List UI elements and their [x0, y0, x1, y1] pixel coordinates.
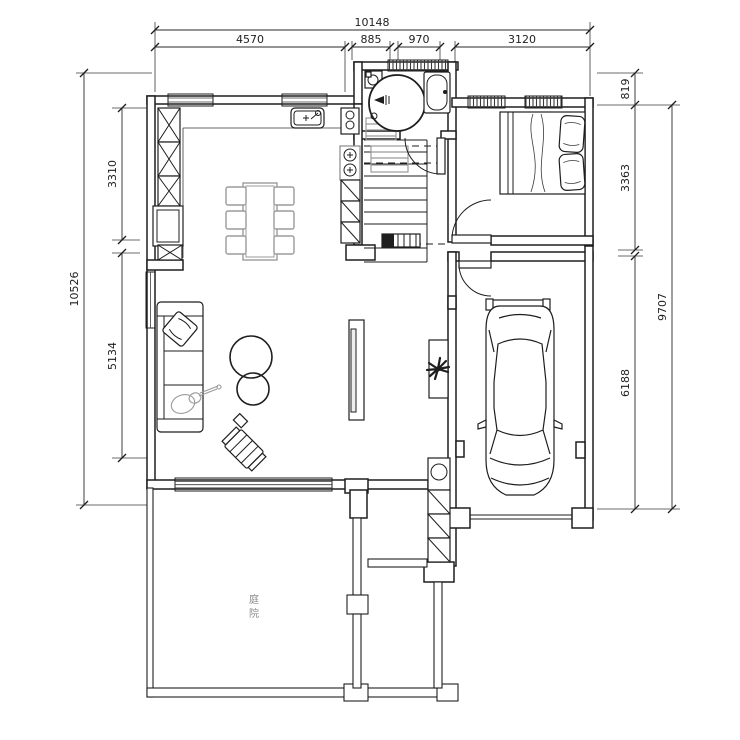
dining-chair	[226, 236, 246, 254]
fence-middle-lower	[353, 614, 361, 688]
wall-garage-top	[491, 252, 593, 261]
tv-stand	[349, 320, 364, 420]
tv	[351, 329, 356, 412]
dim-top-seg-4: 3120	[508, 33, 536, 46]
garage	[478, 299, 562, 495]
dining-chair	[274, 236, 294, 254]
sofa	[157, 302, 221, 432]
stair-treads	[364, 140, 427, 248]
wall-garage-left-pier	[456, 441, 464, 457]
dim-right-seg-3: 6188	[619, 369, 632, 397]
dim-top-seg-3: 970	[409, 33, 430, 46]
dim-right-seg-2: 3363	[619, 164, 632, 192]
dim-top-seg-1: 4570	[236, 33, 264, 46]
floor-plan-canvas: 10148 4570 885 970 3120 10526 3310	[0, 0, 740, 740]
wall-kitchen-top	[147, 96, 360, 104]
kitchen-sink	[291, 108, 324, 128]
wall-bedroom-right	[585, 98, 593, 246]
fence-middle-upper	[353, 518, 361, 595]
car-mirror	[478, 420, 486, 429]
wall-left-exterior	[147, 96, 155, 488]
window-bedroom-2	[525, 96, 562, 108]
wall-garage-right-pier	[576, 442, 585, 458]
pier-garage-door-left	[448, 508, 470, 528]
dim-left-seg-1: 3310	[106, 160, 119, 188]
dining-set	[226, 183, 294, 260]
stove	[340, 146, 360, 180]
dim-right-seg-1: 819	[619, 79, 632, 100]
pillow	[559, 115, 585, 153]
coffee-table-large	[230, 336, 272, 378]
fence-bottom	[147, 688, 455, 697]
dim-left-total: 10526	[68, 272, 81, 307]
bedroom	[500, 112, 585, 194]
living-room	[157, 302, 449, 472]
dining-chair	[274, 211, 294, 229]
car-mirror	[554, 420, 562, 429]
courtyard-label: 庭 院	[249, 593, 259, 620]
kitchen-cabinets-right	[341, 180, 360, 243]
window-bedroom-1	[468, 96, 505, 108]
fence-mudroom	[434, 582, 442, 688]
wall-bedroom-bottom	[491, 236, 593, 245]
dim-left-seg-2: 5134	[106, 342, 119, 370]
kitchen-cabinets-left	[153, 108, 183, 260]
wall-kitchen-living-stub	[147, 260, 183, 270]
dim-right-total: 9707	[656, 293, 669, 321]
stair-mat	[382, 234, 420, 247]
kitchen-prep-sink	[341, 108, 359, 134]
courtyard-label-char-1: 庭	[249, 593, 259, 606]
garage-entry-door	[459, 261, 491, 296]
car	[478, 299, 562, 495]
lounge-chair	[216, 414, 275, 473]
left-dimension-chain: 10526 3310 5134	[68, 69, 152, 509]
round-tub	[369, 75, 425, 131]
window-bathroom-top	[388, 60, 448, 71]
dining-chair	[274, 187, 294, 205]
dining-chair	[226, 187, 246, 205]
mudroom-cabinets	[428, 458, 450, 562]
fence-connector	[368, 559, 427, 567]
bathroom	[365, 71, 450, 131]
wall-stair-cap	[346, 245, 375, 260]
fence-pier-middle	[347, 595, 368, 614]
wall-bathroom-left	[354, 62, 362, 104]
wall-mudroom-pier	[424, 562, 454, 582]
bed	[500, 112, 585, 194]
courtyard-label-char-2: 院	[249, 607, 259, 620]
fence-pier-top	[350, 490, 367, 518]
floor-plan: 10148 4570 885 970 3120 10526 3310	[0, 0, 740, 740]
pier-garage-door-right	[572, 508, 593, 528]
fence-left	[147, 488, 153, 697]
bathroom-door	[405, 138, 445, 174]
pillow	[559, 153, 585, 191]
wall-garage-right	[585, 246, 593, 520]
dim-top-total: 10148	[355, 16, 390, 29]
plant-stand	[427, 340, 449, 398]
dim-top-seg-2: 885	[361, 33, 382, 46]
bathtub	[424, 72, 450, 113]
dining-chair	[226, 211, 246, 229]
staircase	[364, 118, 448, 262]
right-dimension-chain: 819 3363 6188 9707	[597, 69, 680, 513]
bedroom-door	[452, 200, 491, 243]
courtyard-fences	[147, 488, 458, 701]
wall-entry-post	[448, 296, 456, 309]
